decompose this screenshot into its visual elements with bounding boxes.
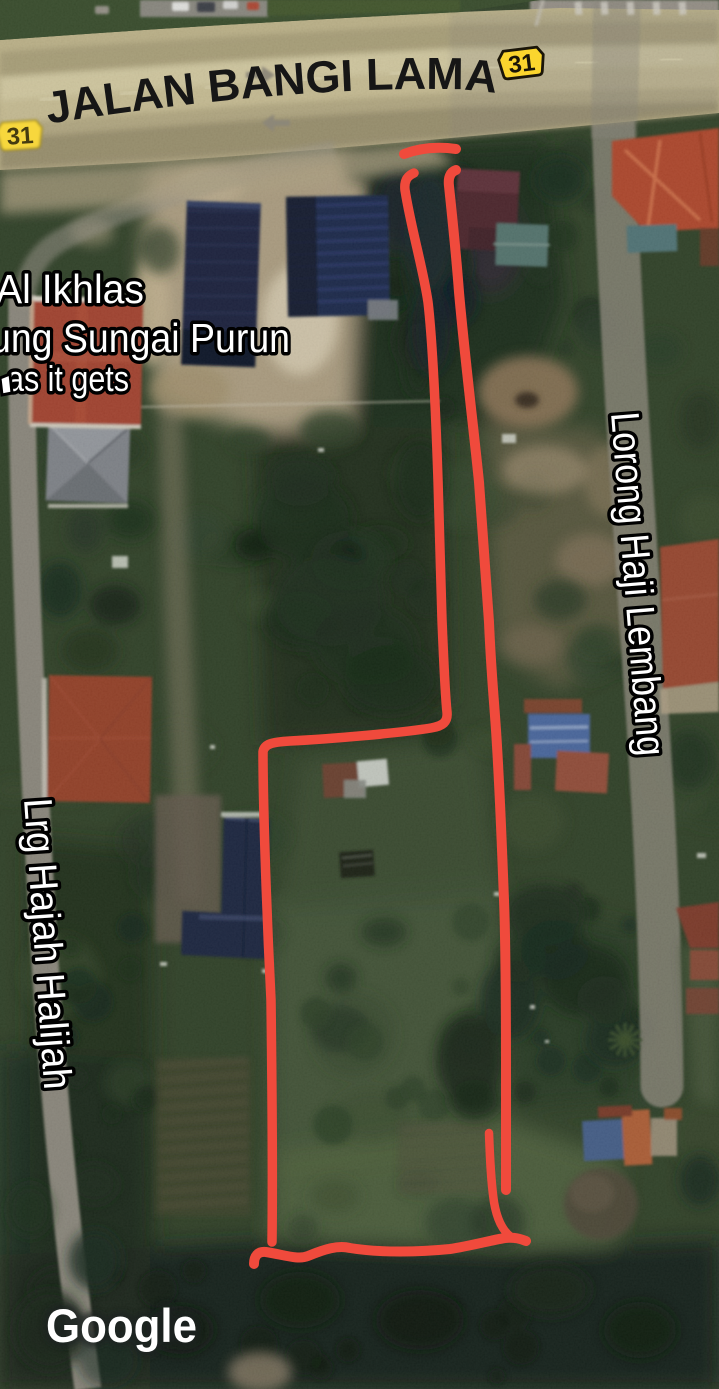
svg-text:as it gets: as it gets bbox=[7, 358, 129, 399]
svg-text:ung Sungai Purun: ung Sungai Purun bbox=[0, 315, 290, 361]
svg-text:31: 31 bbox=[6, 122, 35, 151]
svg-text:Al Ikhlas: Al Ikhlas bbox=[0, 266, 144, 312]
svg-text:31: 31 bbox=[507, 49, 537, 79]
svg-text:Google: Google bbox=[46, 1299, 197, 1352]
